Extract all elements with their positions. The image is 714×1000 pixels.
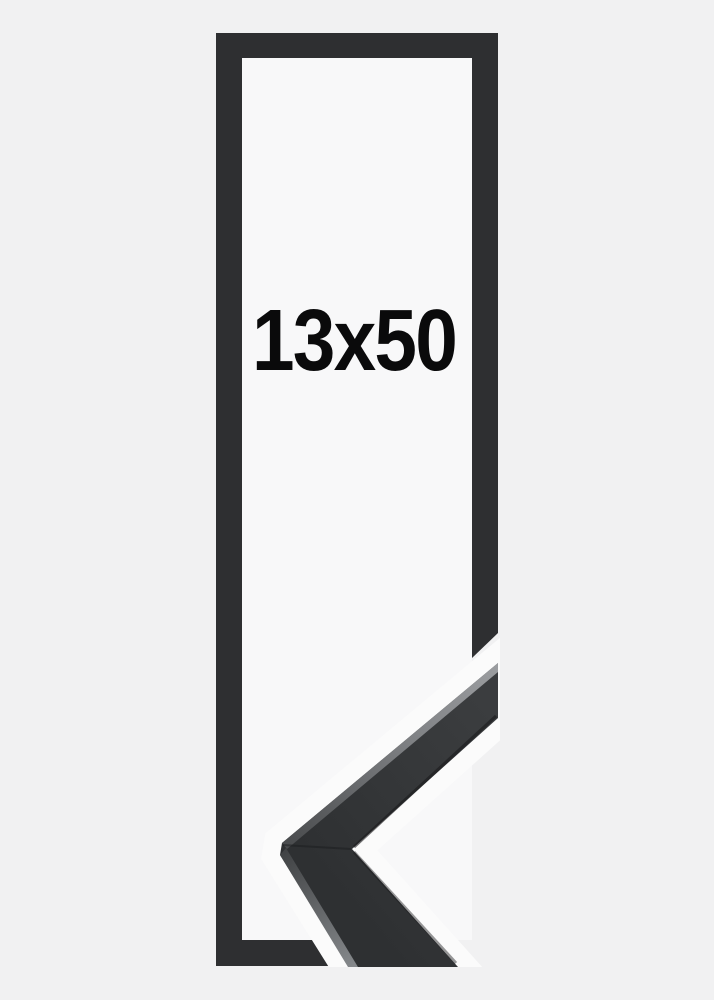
size-label: 13x50 bbox=[252, 291, 456, 391]
frame-illustration bbox=[0, 0, 714, 1000]
product-photo: 13x50 bbox=[0, 0, 714, 1000]
